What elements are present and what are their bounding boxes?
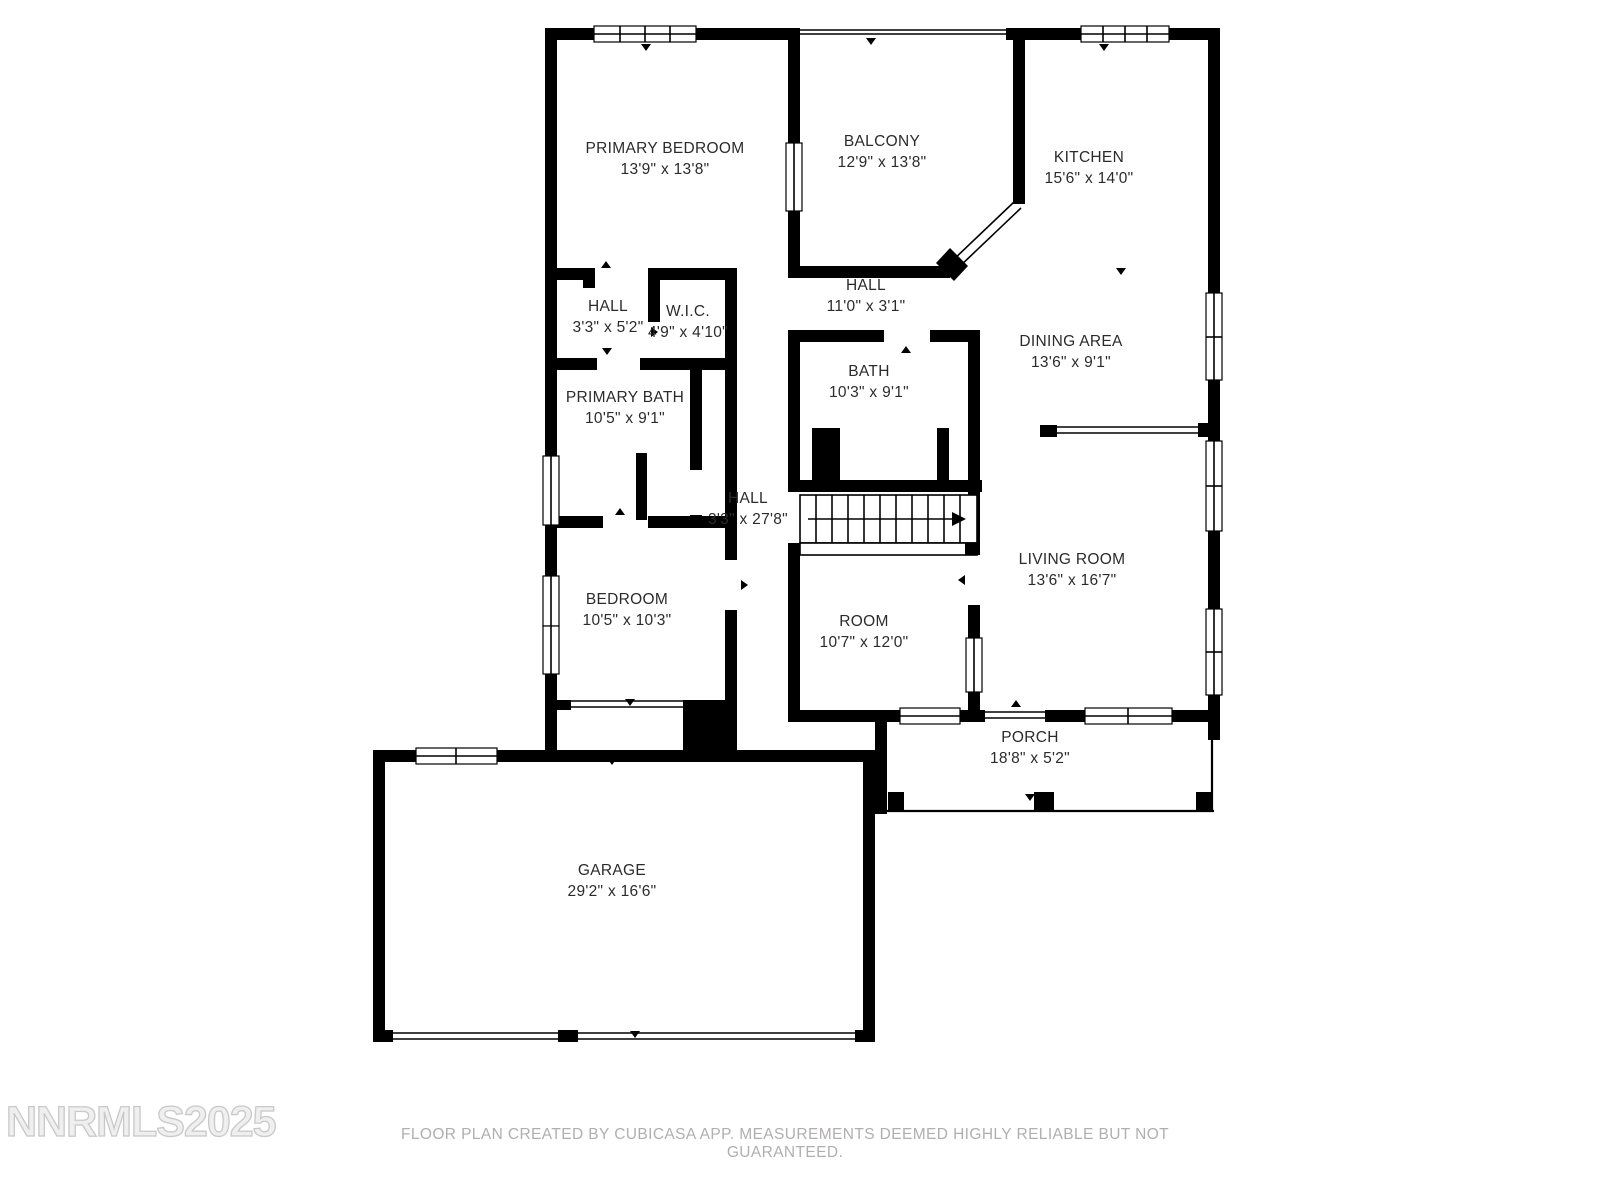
- room-dims: 10'5" x 10'3": [583, 610, 672, 631]
- room-label-bath: BATH 10'3" x 9'1": [829, 361, 909, 403]
- room-label-bedroom: BEDROOM 10'5" x 10'3": [583, 589, 672, 631]
- stairs: [800, 495, 977, 555]
- room-name: ROOM: [839, 611, 888, 632]
- room-name: LIVING ROOM: [1019, 549, 1126, 570]
- watermark-nnrmls: NNRMLS2025: [6, 1098, 276, 1147]
- room-name: HALL: [728, 488, 768, 509]
- window-icon: [1206, 441, 1222, 531]
- room-label-room: ROOM 10'7" x 12'0": [820, 611, 909, 653]
- room-label-hall-upper: HALL 11'0" x 3'1": [827, 275, 906, 317]
- room-name: KITCHEN: [1054, 147, 1124, 168]
- room-dims: 10'3" x 9'1": [829, 382, 909, 403]
- window-icon: [594, 26, 696, 42]
- room-name: W.I.C.: [666, 301, 710, 322]
- window-icon: [1085, 708, 1172, 724]
- room-dims: 3'3" x 27'8": [708, 509, 788, 530]
- room-dims: 13'6" x 16'7": [1028, 570, 1117, 591]
- room-name: PRIMARY BATH: [566, 387, 684, 408]
- window-icon: [543, 576, 559, 626]
- room-dims: 4'9" x 4'10": [648, 322, 728, 343]
- room-dims: 18'8" x 5'2": [990, 748, 1070, 769]
- window-icon: [1081, 26, 1169, 42]
- window-icon: [1206, 293, 1222, 380]
- room-dims: 11'0" x 3'1": [827, 296, 906, 317]
- room-label-hall-center: HALL 3'3" x 27'8": [708, 488, 788, 530]
- window-icon: [543, 456, 559, 525]
- footer-disclaimer: FLOOR PLAN CREATED BY CUBICASA APP. MEAS…: [370, 1126, 1200, 1162]
- room-label-porch: PORCH 18'8" x 5'2": [990, 727, 1070, 769]
- room-label-kitchen: KITCHEN 15'6" x 14'0": [1045, 147, 1134, 189]
- windows: [416, 26, 1222, 764]
- window-icon: [543, 626, 559, 674]
- room-dims: 13'9" x 13'8": [621, 159, 710, 180]
- room-label-balcony: BALCONY 12'9" x 13'8": [838, 131, 927, 173]
- room-dims: 10'7" x 12'0": [820, 632, 909, 653]
- room-name: PORCH: [1001, 727, 1058, 748]
- room-dims: 15'6" x 14'0": [1045, 168, 1134, 189]
- room-dims: 10'5" x 9'1": [585, 408, 665, 429]
- room-name: BALCONY: [844, 131, 920, 152]
- window-icon: [786, 143, 802, 211]
- room-dims: 3'3" x 5'2": [572, 317, 643, 338]
- room-label-living: LIVING ROOM 13'6" x 16'7": [1019, 549, 1126, 591]
- room-name: BATH: [848, 361, 889, 382]
- room-name: GARAGE: [578, 860, 646, 881]
- room-name: DINING AREA: [1019, 331, 1122, 352]
- room-label-primary-bedroom: PRIMARY BEDROOM 13'9" x 13'8": [586, 138, 745, 180]
- window-icon: [900, 708, 960, 724]
- window-icon: [416, 748, 497, 764]
- room-label-garage: GARAGE 29'2" x 16'6": [568, 860, 657, 902]
- room-name: BEDROOM: [586, 589, 668, 610]
- room-label-primary-bath: PRIMARY BATH 10'5" x 9'1": [566, 387, 684, 429]
- room-dims: 12'9" x 13'8": [838, 152, 927, 173]
- floorplan-canvas: PRIMARY BEDROOM 13'9" x 13'8" BALCONY 12…: [0, 0, 1600, 1200]
- room-name: HALL: [588, 296, 628, 317]
- window-icon: [1206, 609, 1222, 695]
- room-label-hall-left: HALL 3'3" x 5'2": [572, 296, 643, 338]
- room-label-dining: DINING AREA 13'6" x 9'1": [1019, 331, 1122, 373]
- room-dims: 29'2" x 16'6": [568, 881, 657, 902]
- room-dims: 13'6" x 9'1": [1031, 352, 1111, 373]
- floorplan-drawing: [0, 0, 1600, 1200]
- window-icon: [966, 638, 982, 692]
- room-name: HALL: [846, 275, 886, 296]
- room-name: PRIMARY BEDROOM: [586, 138, 745, 159]
- room-label-wic: W.I.C. 4'9" x 4'10": [648, 301, 728, 343]
